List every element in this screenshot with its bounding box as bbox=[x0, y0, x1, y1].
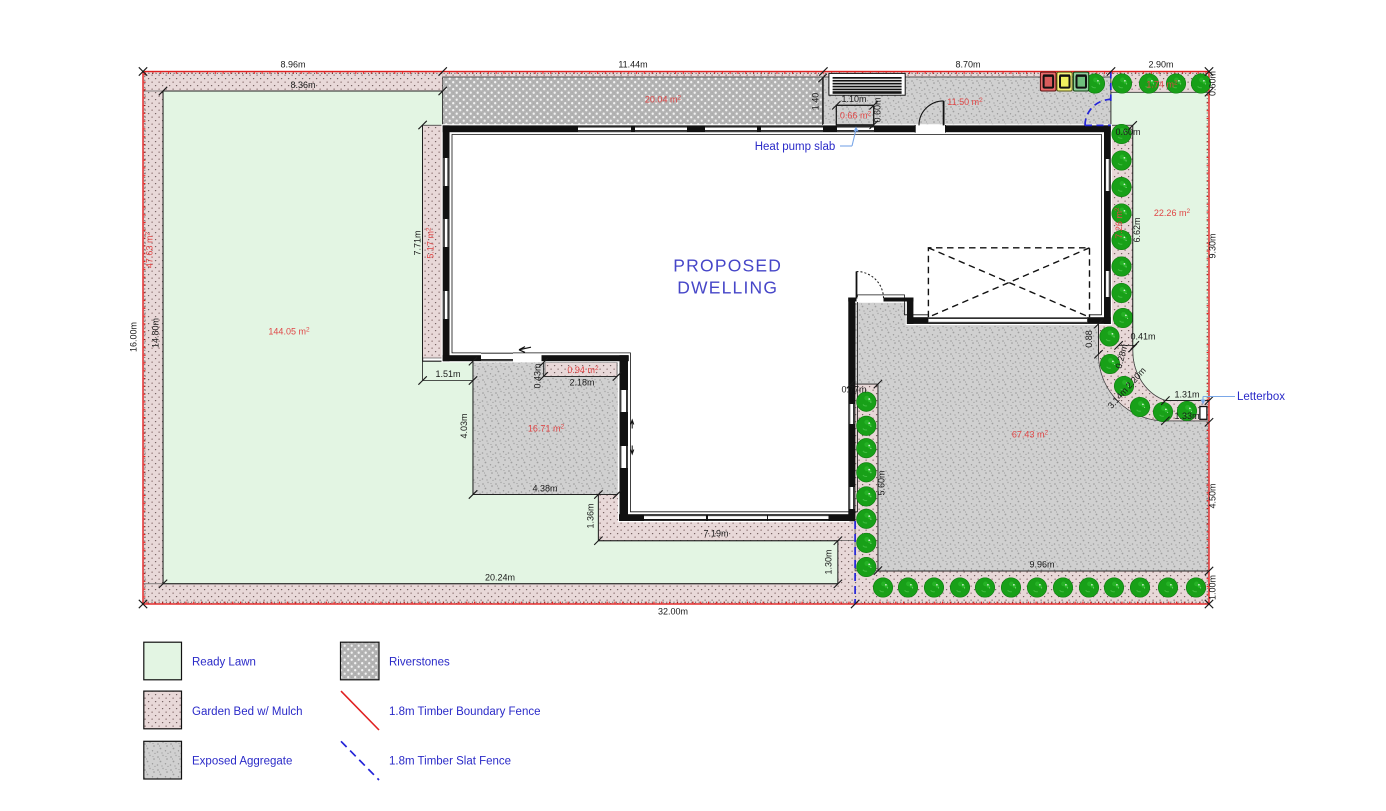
svg-text:22.26 m2: 22.26 m2 bbox=[1154, 208, 1191, 218]
svg-text:0.94 m2: 0.94 m2 bbox=[567, 365, 599, 375]
svg-text:1.33m: 1.33m bbox=[1174, 411, 1199, 421]
svg-text:7.71m: 7.71m bbox=[413, 230, 423, 255]
svg-text:4.38m: 4.38m bbox=[532, 484, 557, 494]
svg-text:1.31m: 1.31m bbox=[1174, 390, 1199, 400]
svg-text:1.40: 1.40 bbox=[811, 93, 821, 111]
svg-text:11.50 m2: 11.50 m2 bbox=[947, 97, 983, 107]
svg-text:Ready Lawn: Ready Lawn bbox=[192, 657, 256, 669]
svg-text:Heat pump slab: Heat pump slab bbox=[755, 141, 836, 153]
svg-text:47.63 m2: 47.63 m2 bbox=[145, 232, 155, 269]
svg-text:14.80m: 14.80m bbox=[151, 318, 161, 348]
svg-text:16.00m: 16.00m bbox=[129, 322, 139, 352]
svg-text:0.60m: 0.60m bbox=[873, 97, 883, 122]
svg-text:5.17 m2: 5.17 m2 bbox=[426, 227, 436, 259]
svg-text:1.10m: 1.10m bbox=[841, 94, 866, 104]
svg-text:2.18m: 2.18m bbox=[569, 378, 594, 388]
svg-text:1.51m: 1.51m bbox=[435, 369, 460, 379]
svg-text:0.77m: 0.77m bbox=[841, 385, 866, 395]
svg-text:0.66 m2: 0.66 m2 bbox=[840, 111, 872, 121]
svg-text:8.70m: 8.70m bbox=[955, 60, 980, 70]
svg-text:0.60m: 0.60m bbox=[1115, 127, 1140, 137]
svg-text:1.30m: 1.30m bbox=[824, 549, 834, 574]
svg-text:5.60m: 5.60m bbox=[877, 470, 887, 495]
svg-text:Exposed Aggregate: Exposed Aggregate bbox=[192, 756, 292, 768]
svg-text:20.04 m2: 20.04 m2 bbox=[645, 95, 682, 105]
svg-text:8.96m: 8.96m bbox=[280, 60, 305, 70]
svg-text:9.30m: 9.30m bbox=[1208, 233, 1218, 258]
svg-text:4.03m: 4.03m bbox=[459, 413, 469, 438]
svg-text:16.71 m2: 16.71 m2 bbox=[528, 424, 565, 434]
svg-text:1.74 m2: 1.74 m2 bbox=[1146, 80, 1178, 90]
svg-text:0.43m: 0.43m bbox=[533, 363, 543, 388]
svg-text:7.19m: 7.19m bbox=[703, 529, 728, 539]
svg-text:1.8m Timber Boundary Fence: 1.8m Timber Boundary Fence bbox=[389, 706, 541, 718]
svg-text:1.8m Timber Slat Fence: 1.8m Timber Slat Fence bbox=[389, 756, 511, 768]
svg-text:67.43 m2: 67.43 m2 bbox=[1012, 430, 1049, 440]
svg-text:8.36m: 8.36m bbox=[290, 80, 315, 90]
svg-text:Letterbox: Letterbox bbox=[1237, 391, 1285, 403]
svg-text:PROPOSED: PROPOSED bbox=[673, 256, 782, 276]
svg-text:4.50m: 4.50m bbox=[1208, 483, 1218, 508]
svg-text:7.26 m2: 7.26 m2 bbox=[1114, 207, 1124, 239]
svg-text:Riverstones: Riverstones bbox=[389, 657, 450, 669]
svg-text:144.05 m2: 144.05 m2 bbox=[268, 327, 310, 337]
svg-text:1.36m: 1.36m bbox=[586, 503, 596, 528]
svg-text:Garden Bed w/ Mulch: Garden Bed w/ Mulch bbox=[192, 706, 303, 718]
svg-text:9.96m: 9.96m bbox=[1029, 560, 1054, 570]
svg-text:2.90m: 2.90m bbox=[1148, 60, 1173, 70]
svg-text:6.62m: 6.62m bbox=[1132, 217, 1142, 242]
svg-text:0.60m: 0.60m bbox=[1208, 71, 1218, 96]
svg-text:11.44m: 11.44m bbox=[618, 60, 647, 70]
svg-text:20.24m: 20.24m bbox=[485, 573, 515, 583]
svg-text:1.00m: 1.00m bbox=[1208, 575, 1218, 600]
svg-text:0.88: 0.88 bbox=[1084, 330, 1094, 348]
svg-text:0.41m: 0.41m bbox=[1130, 332, 1155, 342]
svg-text:DWELLING: DWELLING bbox=[677, 278, 778, 298]
svg-text:32.00m: 32.00m bbox=[658, 607, 688, 617]
